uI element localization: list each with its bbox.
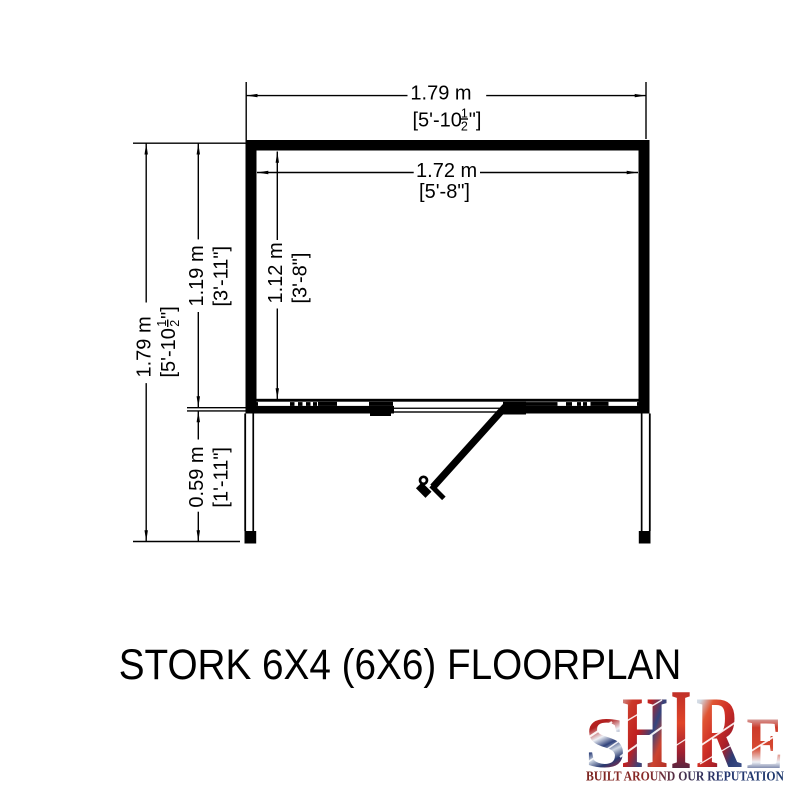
svg-text:BUILT AROUND OUR REPUTATION: BUILT AROUND OUR REPUTATION xyxy=(586,769,784,784)
svg-text:1.12 m: 1.12 m xyxy=(265,242,287,303)
svg-text:2: 2 xyxy=(168,320,182,327)
svg-text:1.72 m: 1.72 m xyxy=(416,160,477,182)
svg-text:1.79 m: 1.79 m xyxy=(410,83,471,105)
svg-text:1.19 m: 1.19 m xyxy=(186,245,208,306)
svg-text:[3'-11"]: [3'-11"] xyxy=(210,246,232,307)
svg-text:[5'-10: [5'-10 xyxy=(413,110,462,132)
svg-text:[3'-8"]: [3'-8"] xyxy=(289,253,311,304)
svg-text:[1'-11"]: [1'-11"] xyxy=(210,447,232,508)
svg-text:STORK 6X4 (6X6) FLOORPLAN: STORK 6X4 (6X6) FLOORPLAN xyxy=(119,640,682,688)
svg-text:"]: "] xyxy=(158,306,180,319)
svg-text:[5'-10: [5'-10 xyxy=(158,328,180,377)
svg-text:[5'-8"]: [5'-8"] xyxy=(419,181,470,203)
svg-text:0.59 m: 0.59 m xyxy=(186,446,208,507)
svg-text:1.79 m: 1.79 m xyxy=(134,316,156,377)
svg-text:"]: "] xyxy=(469,110,482,132)
svg-text:2: 2 xyxy=(461,120,468,134)
